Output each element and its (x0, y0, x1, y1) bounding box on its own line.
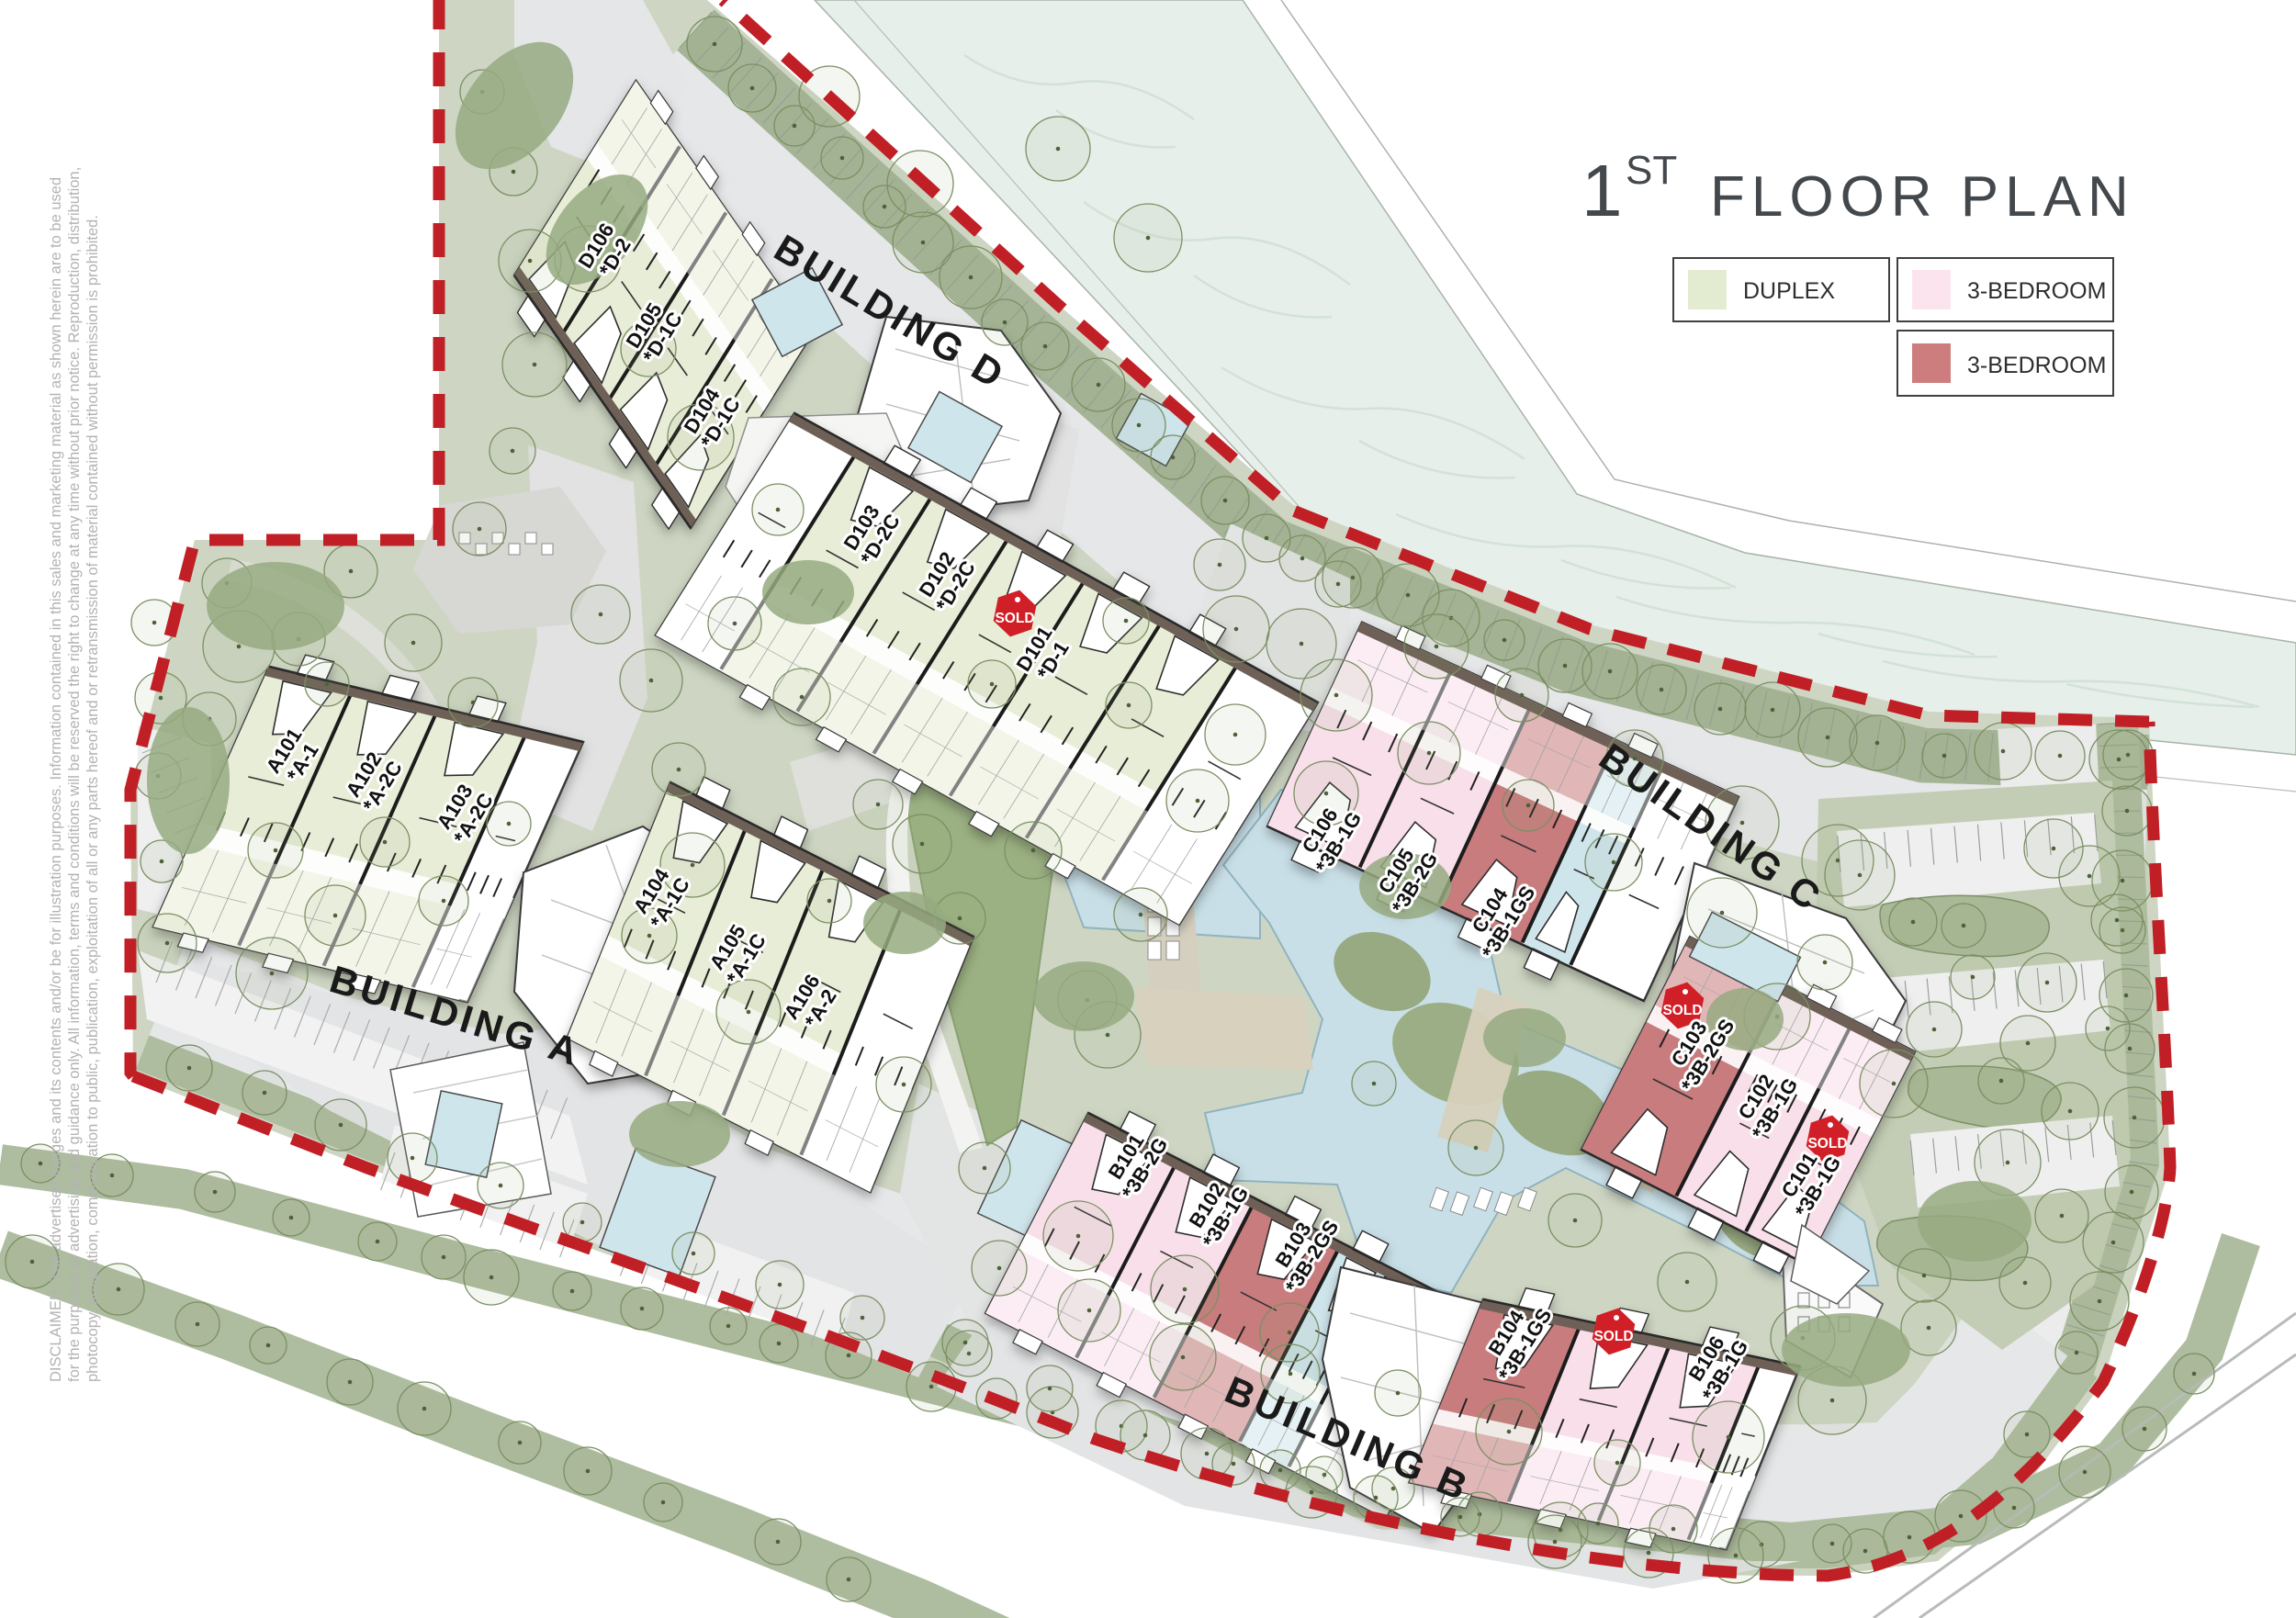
svg-text:DISCLAIMER: The advertised ima: DISCLAIMER: The advertised images and it… (48, 177, 64, 1382)
svg-text:SOLD: SOLD (1593, 1329, 1633, 1344)
svg-text:1: 1 (1581, 150, 1623, 231)
svg-text:DUPLEX: DUPLEX (1743, 278, 1835, 304)
svg-text:3-BEDROOM: 3-BEDROOM (1967, 353, 2106, 378)
svg-text:3-BEDROOM: 3-BEDROOM (1967, 278, 2106, 304)
svg-text:SOLD: SOLD (1662, 1003, 1702, 1018)
svg-text:SOLD: SOLD (995, 611, 1034, 626)
svg-text:for the purposes of advertisin: for the purposes of advertising and guid… (66, 167, 83, 1382)
svg-text:photocopy, adaptation, communi: photocopy, adaptation, communication to … (84, 215, 101, 1382)
svg-text:FLOOR PLAN: FLOOR PLAN (1710, 165, 2135, 229)
svg-text:SOLD: SOLD (1807, 1136, 1847, 1152)
svg-text:ST: ST (1626, 148, 1677, 193)
